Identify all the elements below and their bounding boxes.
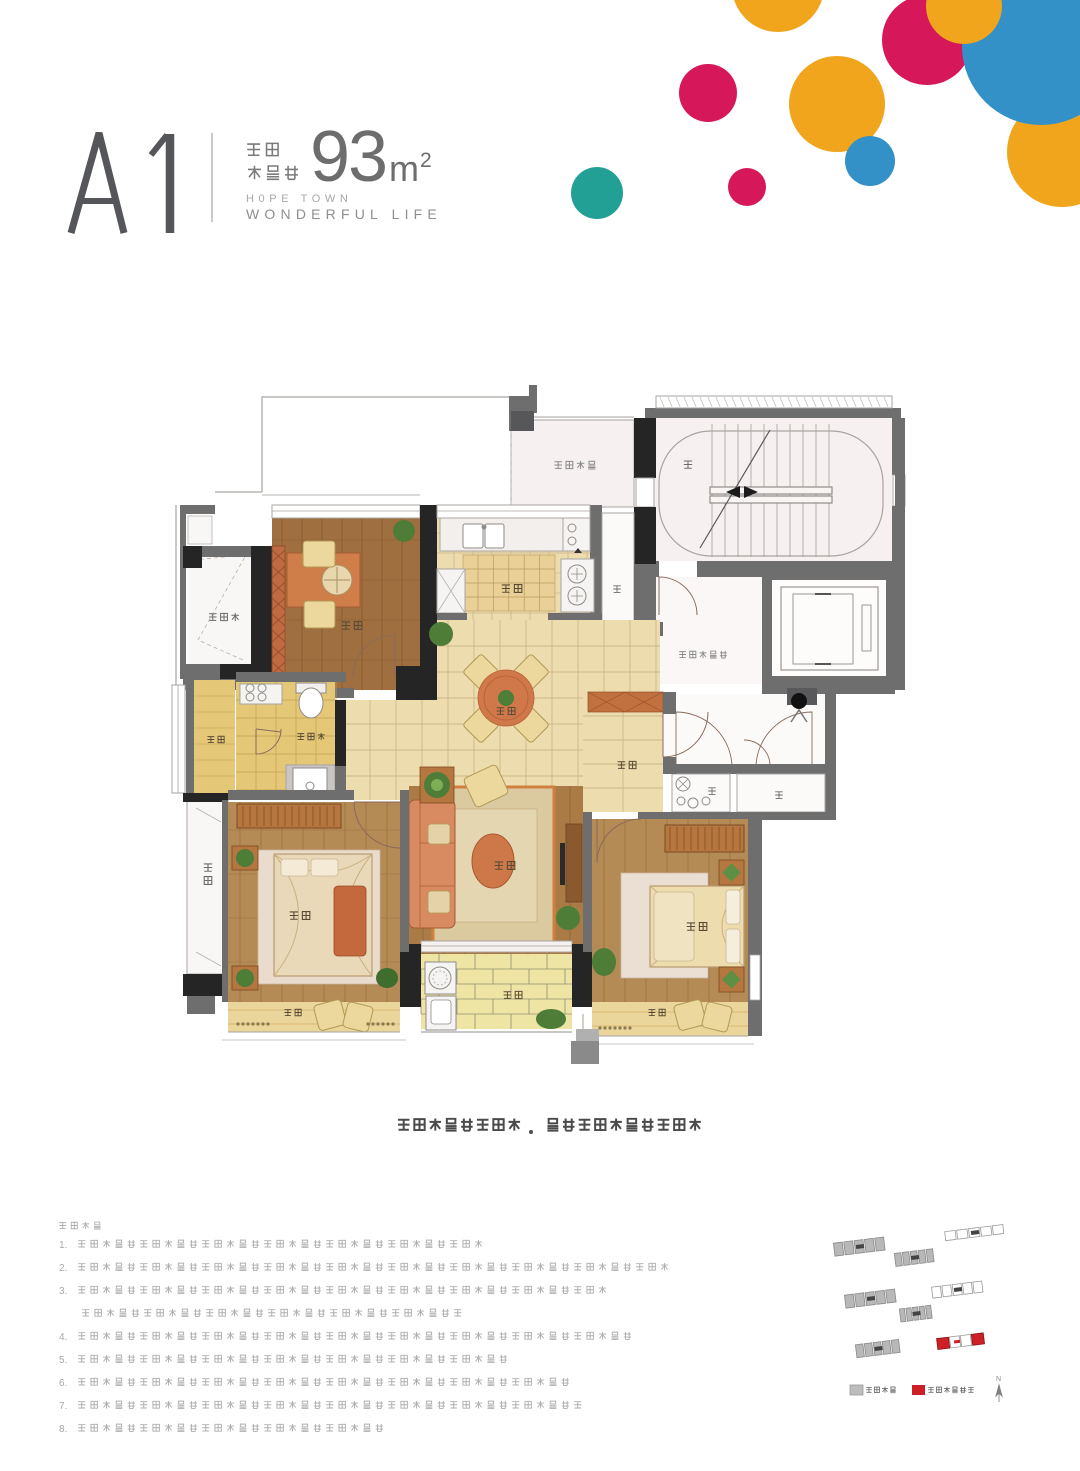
svg-text:1.: 1. <box>59 1240 67 1251</box>
svg-text:N: N <box>996 1376 1001 1383</box>
svg-text:2: 2 <box>420 149 432 172</box>
svg-text:2.: 2. <box>59 1263 67 1274</box>
svg-text:H0PE TOWN: H0PE TOWN <box>246 193 352 205</box>
svg-text:93: 93 <box>310 117 386 197</box>
svg-text:5.: 5. <box>59 1355 67 1366</box>
svg-text:4.: 4. <box>59 1332 67 1343</box>
svg-text:6.: 6. <box>59 1378 67 1389</box>
svg-text:3.: 3. <box>59 1286 67 1297</box>
svg-text:m: m <box>389 148 419 189</box>
svg-text:8.: 8. <box>59 1424 67 1435</box>
svg-text:7.: 7. <box>59 1401 67 1412</box>
svg-text:WONDERFUL LIFE: WONDERFUL LIFE <box>246 206 442 222</box>
